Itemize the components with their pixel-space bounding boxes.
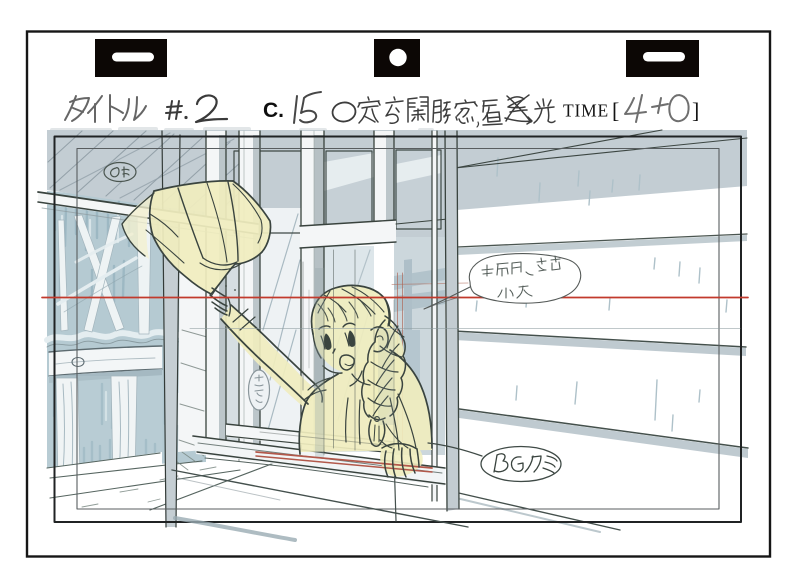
svg-text:[: [ — [612, 98, 619, 123]
svg-text:TIME: TIME — [563, 101, 609, 121]
svg-text:]: ] — [692, 98, 699, 123]
svg-text:C.: C. — [263, 99, 284, 122]
